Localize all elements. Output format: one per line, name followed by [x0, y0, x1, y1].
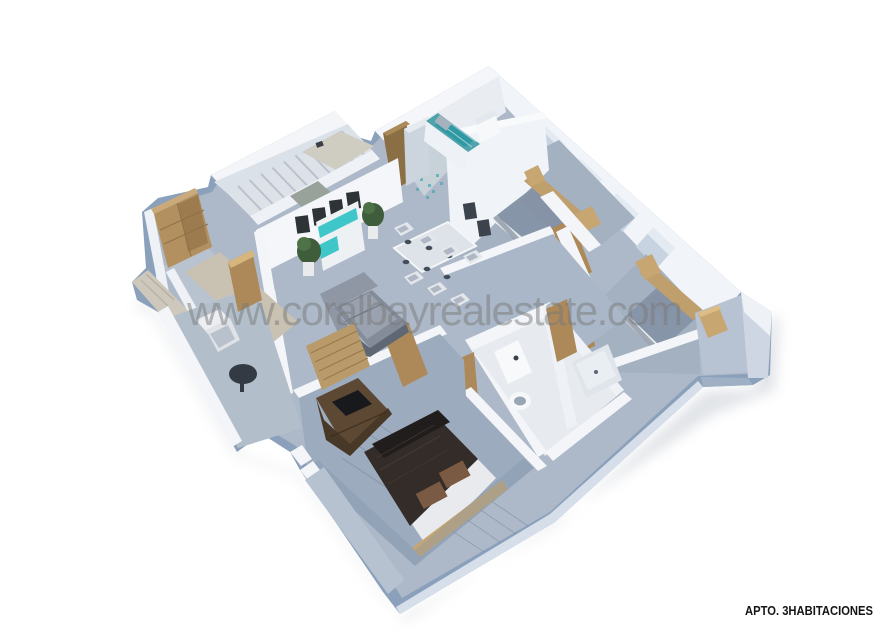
- svg-text:APTO. 3HABITACIONES: APTO. 3HABITACIONES: [745, 603, 873, 618]
- svg-text:www.coralbayrealestate.com: www.coralbayrealestate.com: [186, 287, 683, 334]
